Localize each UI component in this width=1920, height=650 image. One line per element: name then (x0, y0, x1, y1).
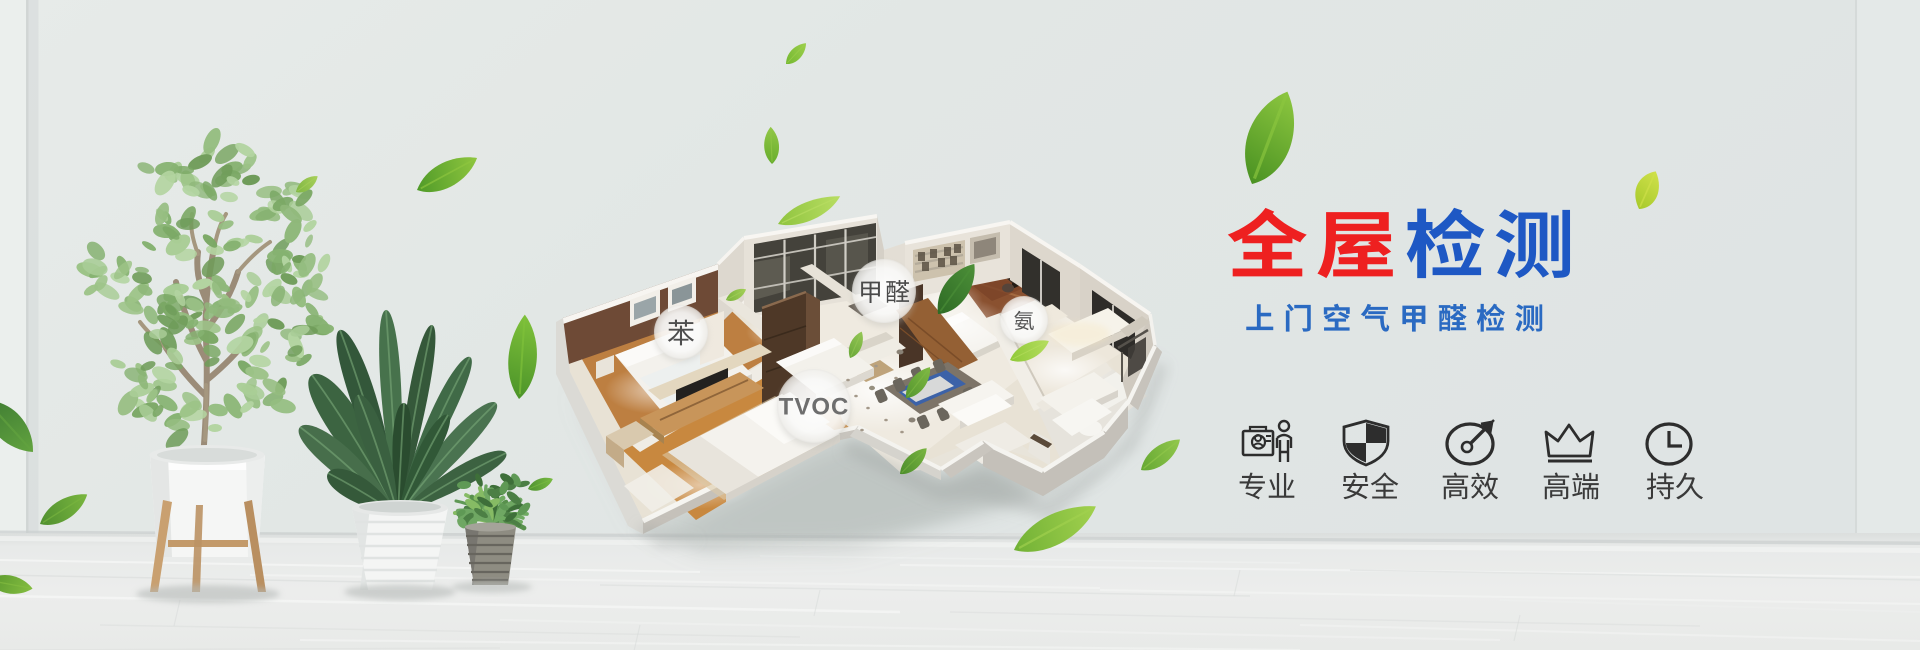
svg-text:TVOC: TVOC (779, 394, 850, 421)
